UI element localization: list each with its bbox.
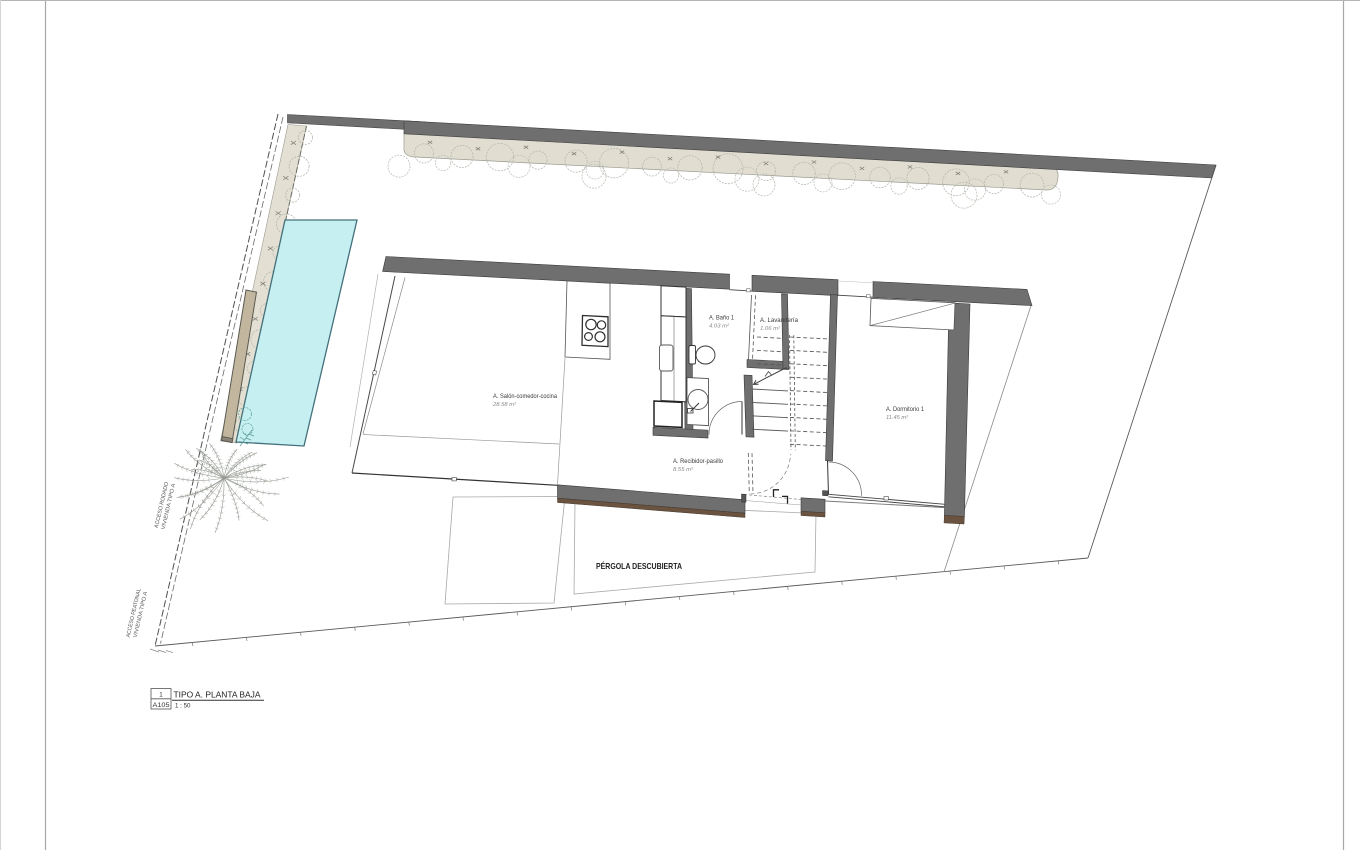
svg-text:A. Salón-comedor-cocina: A. Salón-comedor-cocina [493,393,557,400]
svg-text:1 : 50: 1 : 50 [175,703,191,710]
svg-text:A. Dormitorio 1: A. Dormitorio 1 [886,406,924,413]
svg-text:11.45 m²: 11.45 m² [886,415,908,421]
svg-text:1.06 m²: 1.06 m² [760,326,780,332]
svg-text:PÉRGOLA DESCUBIERTA: PÉRGOLA DESCUBIERTA [596,561,682,571]
svg-text:1: 1 [159,692,163,699]
svg-text:28.58 m²: 28.58 m² [492,402,516,408]
svg-text:A. Recibidor-pasillo: A. Recibidor-pasillo [673,458,723,465]
svg-text:A. Baño 1: A. Baño 1 [709,315,734,322]
svg-text:A105: A105 [153,702,171,709]
svg-text:8.55 m²: 8.55 m² [673,467,693,473]
svg-text:A. Lavandería: A. Lavandería [760,317,798,324]
svg-text:4.03 m²: 4.03 m² [709,324,729,330]
svg-text:TIPO A. PLANTA BAJA: TIPO A. PLANTA BAJA [174,690,261,700]
